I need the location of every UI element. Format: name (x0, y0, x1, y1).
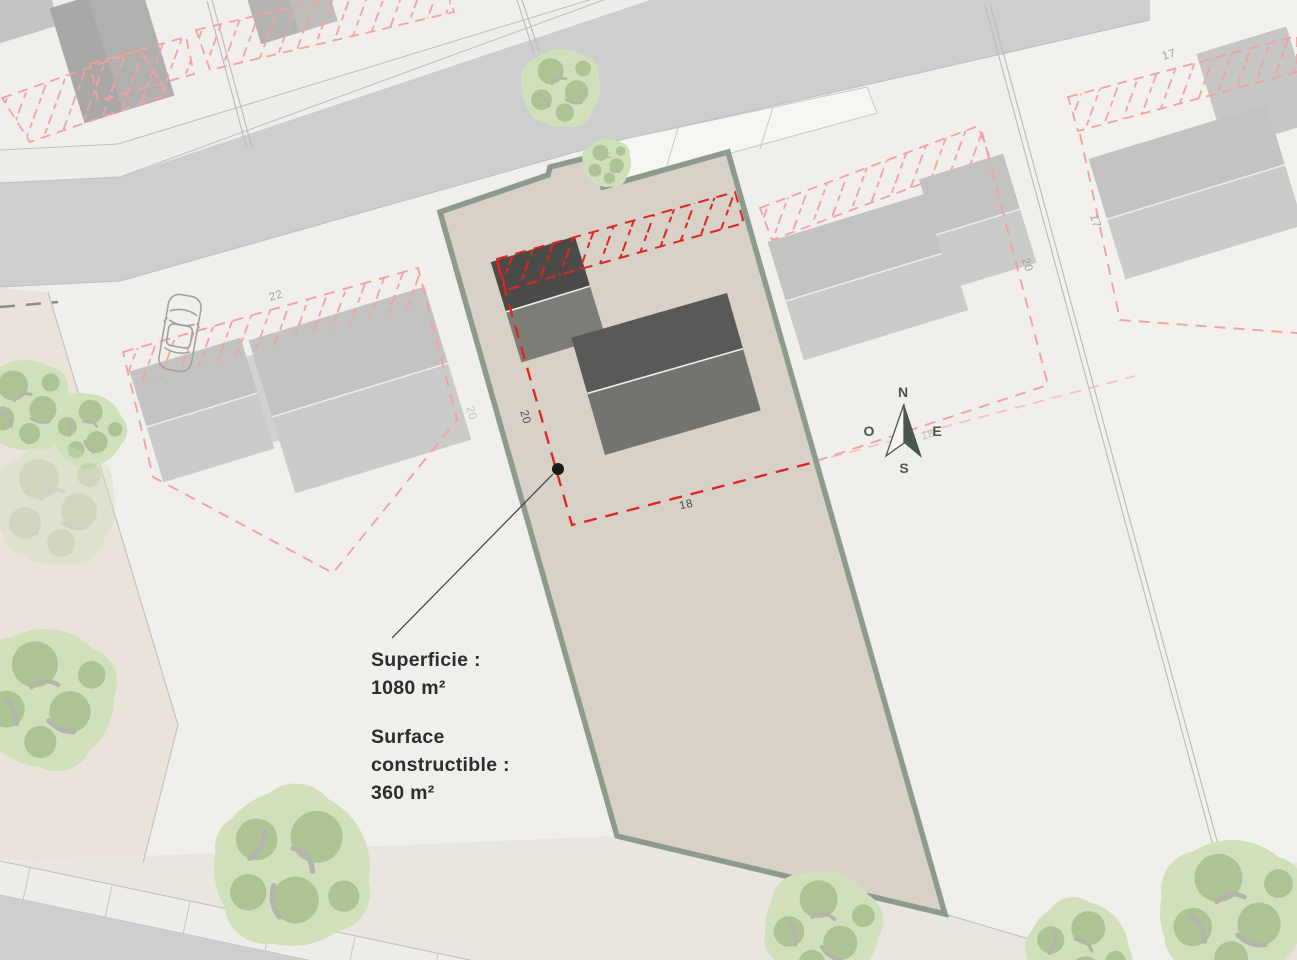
surface-constructible-value: 360 m² (371, 779, 571, 807)
surface-constructible-label: Surface constructible : (371, 723, 551, 779)
surface-constructible-block: Surface constructible : 360 m² (371, 723, 571, 807)
superficie-value: 1080 m² (371, 674, 571, 702)
tree (521, 49, 600, 127)
area-annotation: Superficie : 1080 m² Surface constructib… (371, 646, 571, 828)
site-plan-canvas: 22 20 20 18 18 20 17 17 N O E S (0, 0, 1297, 960)
tree (0, 445, 115, 565)
reference-dot (552, 463, 564, 475)
compass-north: N (898, 384, 908, 400)
superficie-label: Superficie : (371, 646, 571, 674)
compass-west: O (864, 423, 875, 439)
compass-east: E (932, 423, 941, 439)
compass-south: S (899, 460, 908, 476)
superficie-block: Superficie : 1080 m² (371, 646, 571, 702)
tree (582, 139, 631, 187)
